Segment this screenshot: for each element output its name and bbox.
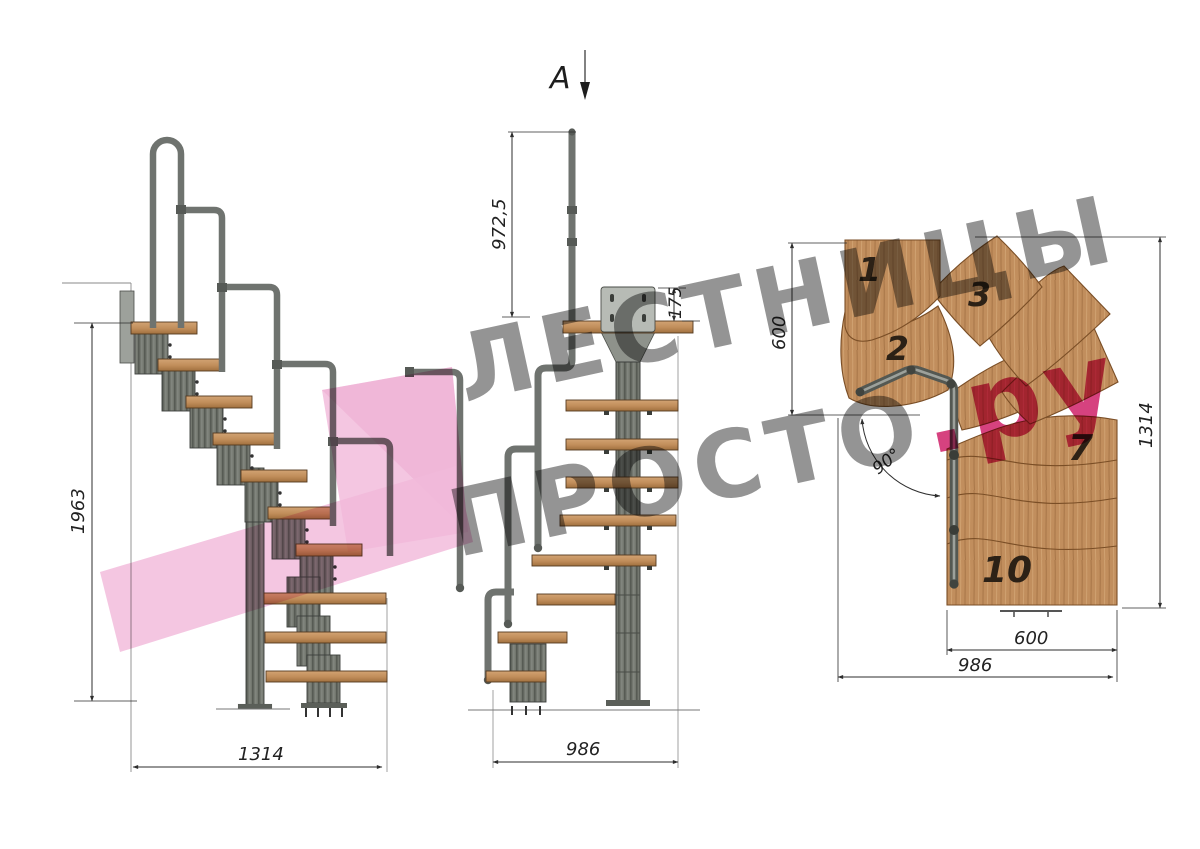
plan-number-1: 1 <box>858 250 881 289</box>
pink-logo-band <box>100 466 473 652</box>
tread <box>566 477 678 488</box>
tread <box>532 555 656 566</box>
dim-plan-total: 986 <box>958 655 992 676</box>
plan-number-7: 7 <box>1068 428 1093 469</box>
tread <box>537 594 615 605</box>
dim-front-rail: 972,5 <box>489 198 510 250</box>
dim-front-bracket: 175 <box>666 287 686 319</box>
base-foot <box>301 703 347 708</box>
dim-front-width: 986 <box>566 739 600 760</box>
tread <box>213 433 279 445</box>
plan-number-10: 10 <box>982 550 1032 591</box>
front-view: A <box>468 50 700 768</box>
dim-plan-angle: 90° <box>869 445 905 479</box>
dim-side-width: 1314 <box>238 744 284 765</box>
tread <box>131 322 197 334</box>
tread <box>265 632 386 643</box>
dim-plan-turn: 600 <box>769 316 790 350</box>
tread <box>560 515 676 526</box>
front-treads <box>486 321 693 682</box>
dim-side-height: 1963 <box>68 488 89 534</box>
column-taper <box>601 332 655 362</box>
section-arrowhead <box>580 82 590 100</box>
handrail-step <box>277 364 333 526</box>
plan-number-3: 3 <box>968 275 991 314</box>
dim-plan-tread: 600 <box>1014 628 1048 649</box>
tread <box>186 396 252 408</box>
tread <box>266 671 387 682</box>
dim-plan-length: 1314 <box>1136 402 1157 448</box>
handrail-step <box>184 210 222 372</box>
column-foot <box>606 700 650 706</box>
drawing-canvas: 1963 1314 A <box>0 0 1200 849</box>
plan-view: 1 2 3 7 10 <box>769 236 1166 682</box>
staircase-drawing: 1963 1314 A <box>0 0 1200 849</box>
plan-number-2: 2 <box>886 329 909 368</box>
turn-column-foot <box>238 704 272 709</box>
handrail-loop <box>153 140 181 328</box>
tread <box>486 671 546 682</box>
mounting-bracket <box>601 287 655 332</box>
handrail-step <box>222 287 277 449</box>
tread <box>158 359 224 371</box>
section-label: A <box>548 61 571 96</box>
tread <box>566 400 678 411</box>
tread <box>498 632 567 643</box>
central-column <box>616 362 640 702</box>
tread <box>241 470 307 482</box>
tread <box>566 439 678 450</box>
